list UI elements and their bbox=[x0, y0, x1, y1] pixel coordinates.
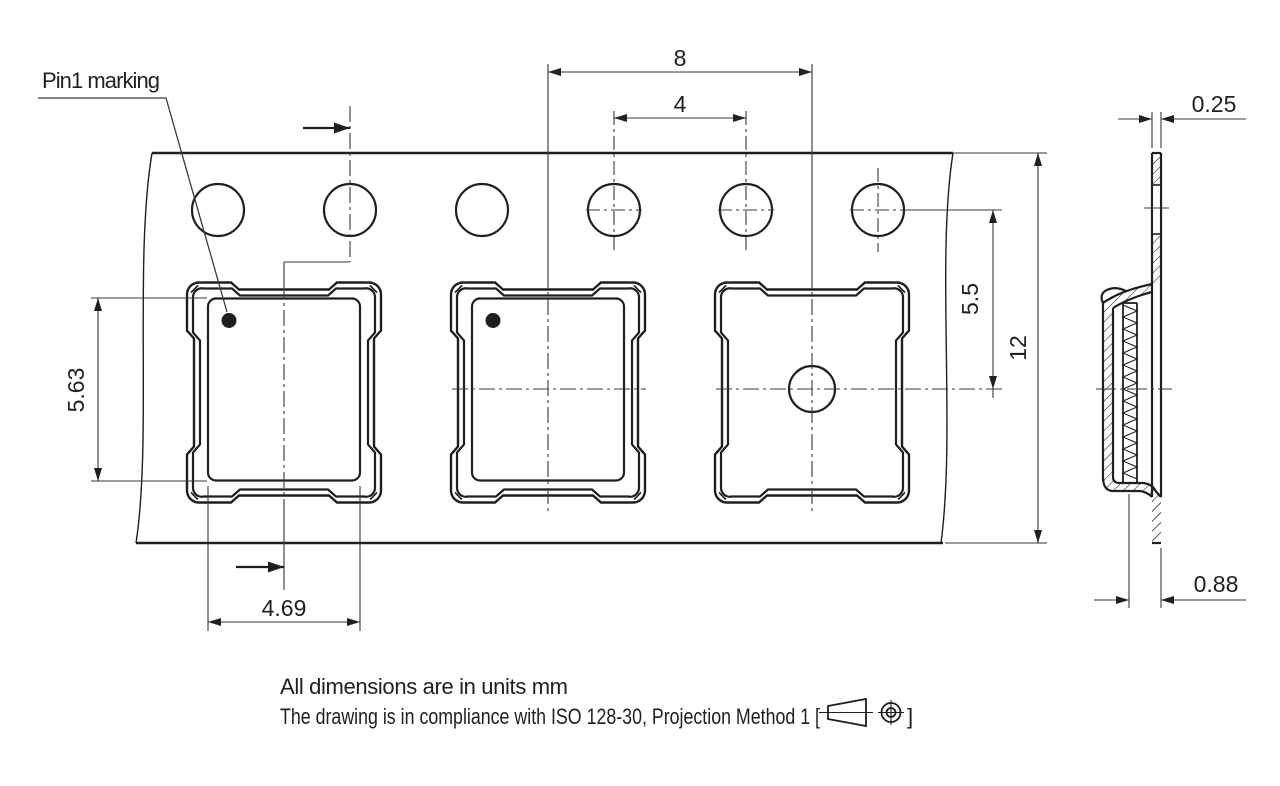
hole-centerlines bbox=[586, 111, 906, 252]
notes: All dimensions are in units mm The drawi… bbox=[280, 674, 913, 729]
side-view: 0.25 0.88 bbox=[1094, 91, 1246, 608]
note-units: All dimensions are in units mm bbox=[280, 674, 568, 699]
tape-outline bbox=[136, 153, 953, 543]
sprocket-hole-3 bbox=[456, 184, 508, 236]
dim-pocket-pitch: 8 bbox=[548, 45, 812, 72]
pin1-marking-label: Pin1 marking bbox=[42, 68, 160, 93]
dim-tape-width: 12 bbox=[945, 153, 1047, 543]
section-line bbox=[284, 106, 350, 590]
tape-left-break-line bbox=[136, 153, 152, 543]
dim-tape-thickness: 0.25 bbox=[1118, 91, 1246, 148]
projection-method-1-icon bbox=[819, 699, 904, 726]
tape-section-profile bbox=[1152, 153, 1161, 543]
dim-tape-thickness-value: 0.25 bbox=[1192, 91, 1237, 117]
plan-view: Pin1 marking 8 4 5.63 4.69 bbox=[38, 45, 1047, 631]
sprocket-hole-1 bbox=[192, 184, 244, 236]
dim-pocket-length: 5.63 bbox=[63, 298, 207, 481]
pin1-leader-line bbox=[38, 98, 227, 312]
dim-overall-thickness-value: 0.88 bbox=[1194, 571, 1239, 597]
dim-pocket-width-value: 4.69 bbox=[262, 595, 307, 621]
dim-hole-to-pocket-value: 5.5 bbox=[957, 283, 983, 315]
strip-hatch-mid bbox=[1152, 234, 1161, 283]
note-standard-suffix: ] bbox=[907, 704, 913, 729]
carrier-tape-drawing: Pin1 marking 8 4 5.63 4.69 bbox=[0, 0, 1280, 786]
tape-right-break-line bbox=[941, 153, 953, 543]
dim-tape-width-value: 12 bbox=[1005, 335, 1031, 361]
dim-pocket-length-value: 5.63 bbox=[63, 368, 89, 413]
dim-overall-thickness: 0.88 bbox=[1094, 494, 1246, 608]
pocket-wall-hatch bbox=[1103, 303, 1113, 477]
dim-pocket-pitch-value: 8 bbox=[674, 45, 687, 71]
chip-section bbox=[1123, 303, 1137, 483]
dim-hole-to-pocket: 5.5 bbox=[906, 210, 1002, 398]
strip-hatch-top bbox=[1152, 155, 1161, 185]
note-standard-prefix: The drawing is in compliance with ISO 12… bbox=[280, 704, 820, 729]
technical-drawing-page: Pin1 marking 8 4 5.63 4.69 bbox=[0, 0, 1280, 786]
dim-hole-pitch-value: 4 bbox=[674, 91, 687, 117]
dim-hole-pitch: 4 bbox=[614, 91, 746, 118]
